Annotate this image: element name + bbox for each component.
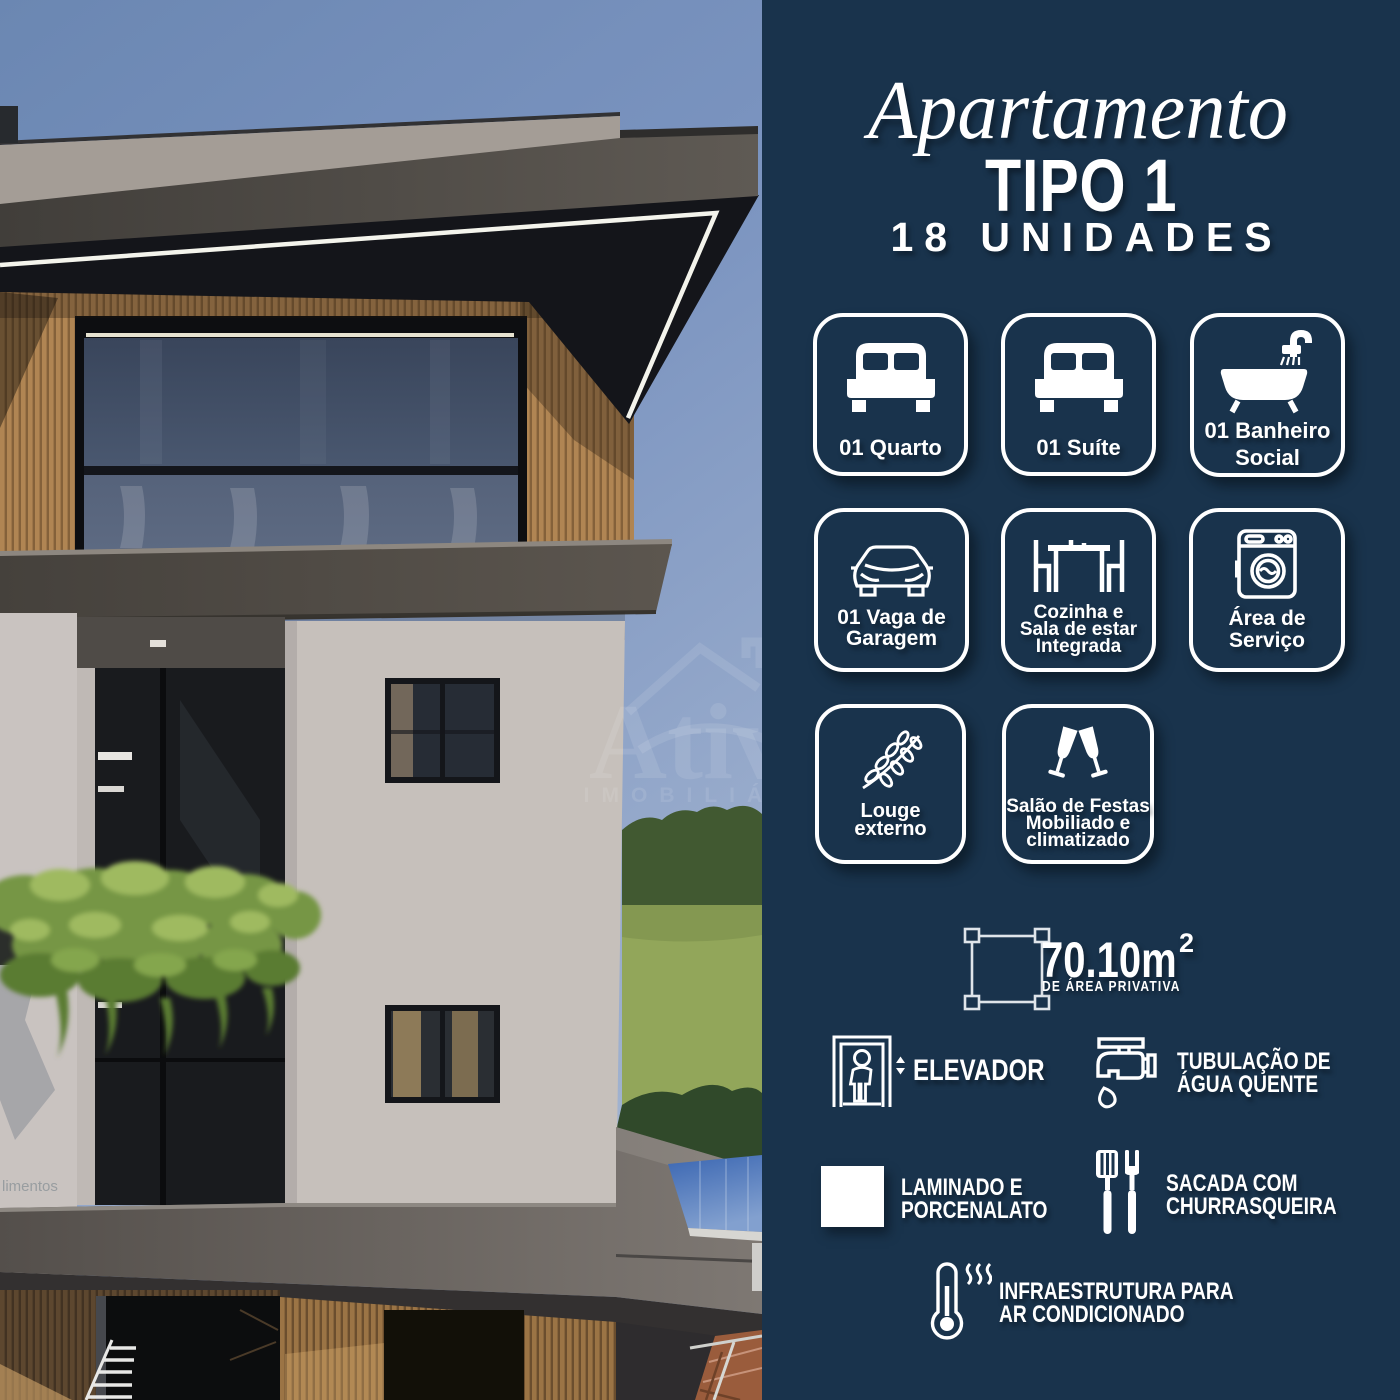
svg-text:limentos: limentos bbox=[2, 1178, 58, 1195]
